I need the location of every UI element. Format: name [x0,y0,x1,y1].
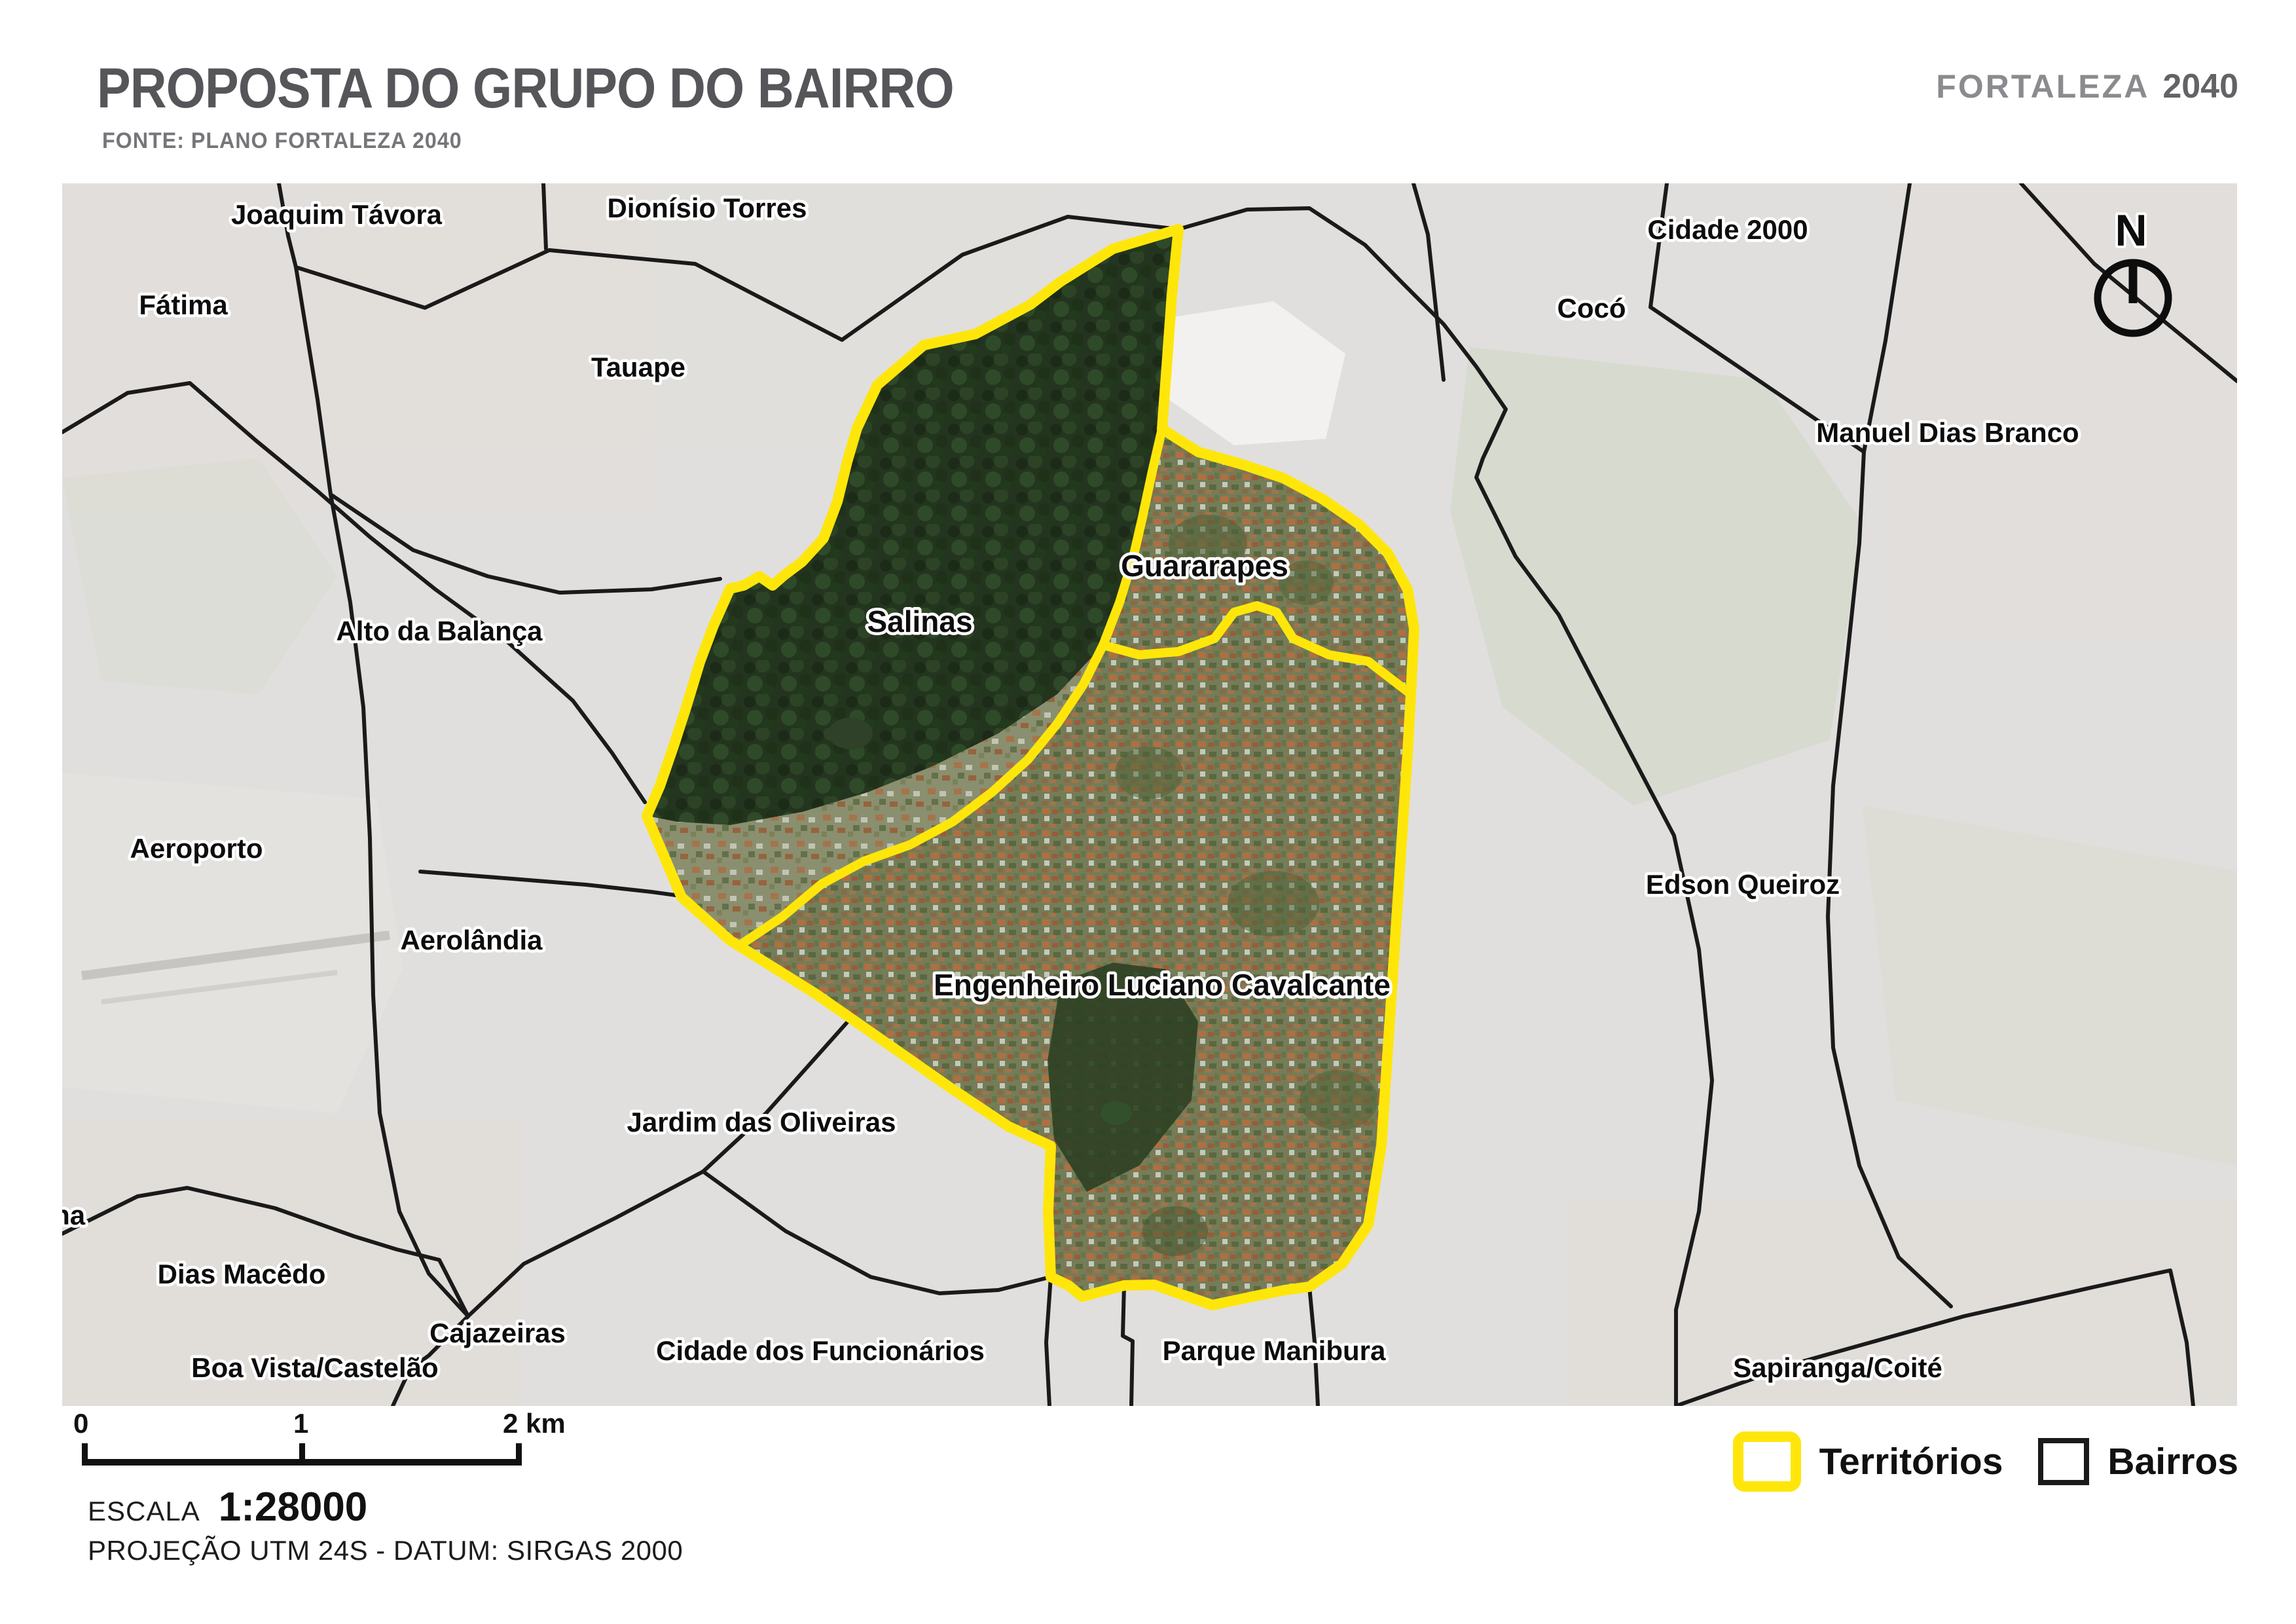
map-label-aeroporto: Aeroporto [130,833,263,864]
brand-name: FORTALEZA [1936,67,2149,105]
map-label-cidade-dos-funcionarios: Cidade dos Funcionários [656,1335,985,1366]
north-label: N [2115,206,2147,255]
map-label-joaquim-tavora: Joaquim Távora [231,199,443,230]
fortaleza-2040-logo: FORTALEZA 2040 [1936,67,2238,106]
map-canvas: N FátimaJoaquim TávoraDionísio TorresTau… [62,183,2237,1406]
map-label-cajazeiras: Cajazeiras [429,1318,566,1348]
bairros-swatch [2038,1438,2089,1485]
legend: Territórios Bairros [1733,1434,2238,1489]
territorios-swatch [1733,1431,1801,1492]
map-label-salinas: Salinas [867,604,972,638]
map-label-jardim-das-oliveiras: Jardim das Oliveiras [627,1107,896,1137]
map-sheet: PROPOSTA DO GRUPO DO BAIRRO FONTE: PLANO… [0,0,2296,1624]
map-label-aerolandia: Aerolândia [400,925,543,955]
brand-year: 2040 [2162,67,2238,106]
satellite-map: N FátimaJoaquim TávoraDionísio TorresTau… [62,183,2237,1406]
map-label-coco: Cocó [1558,293,1626,323]
map-label-manuel-dias-branco: Manuel Dias Branco [1816,417,2079,448]
map-label-parque-manibura: Parque Manibura [1163,1335,1386,1366]
map-label-guararapes: Guararapes [1121,549,1288,583]
scalebar-0: 0 [73,1408,88,1439]
escala-label: ESCALA [88,1496,200,1527]
escala-value: 1:28000 [219,1484,368,1530]
territorios-label: Territórios [1819,1440,2003,1483]
map-label-boa-vista-castelao: Boa Vista/Castelão [191,1352,438,1383]
map-label-dias-macedo: Dias Macêdo [158,1259,326,1289]
map-label-edson-queiroz: Edson Queiroz [1646,869,1840,900]
scalebar-1: 1 [293,1408,308,1439]
map-label-sapiranga-coite: Sapiranga/Coité [1733,1352,1942,1383]
map-label-fatima: Fátima [139,289,228,320]
map-label-engenheiro-luciano-cavalcante: Engenheiro Luciano Cavalcante [934,968,1391,1002]
projection-note: PROJEÇÃO UTM 24S - DATUM: SIRGAS 2000 [88,1535,683,1566]
escala-row: ESCALA 1:28000 [88,1484,367,1530]
map-label-dionisio-torres: Dionísio Torres [608,193,807,223]
page-title: PROPOSTA DO GRUPO DO BAIRRO [97,56,954,121]
source-note: FONTE: PLANO FORTALEZA 2040 [102,128,462,154]
map-label-cidade-2000: Cidade 2000 [1647,214,1808,245]
bairros-label: Bairros [2107,1440,2238,1483]
map-label-inha: inha [62,1200,86,1230]
scalebar [81,1439,523,1468]
lake [828,718,873,749]
scalebar-2km: 2 km [503,1408,566,1439]
map-label-tauape: Tauape [591,352,685,382]
map-label-alto-da-balanca: Alto da Balança [336,616,543,646]
